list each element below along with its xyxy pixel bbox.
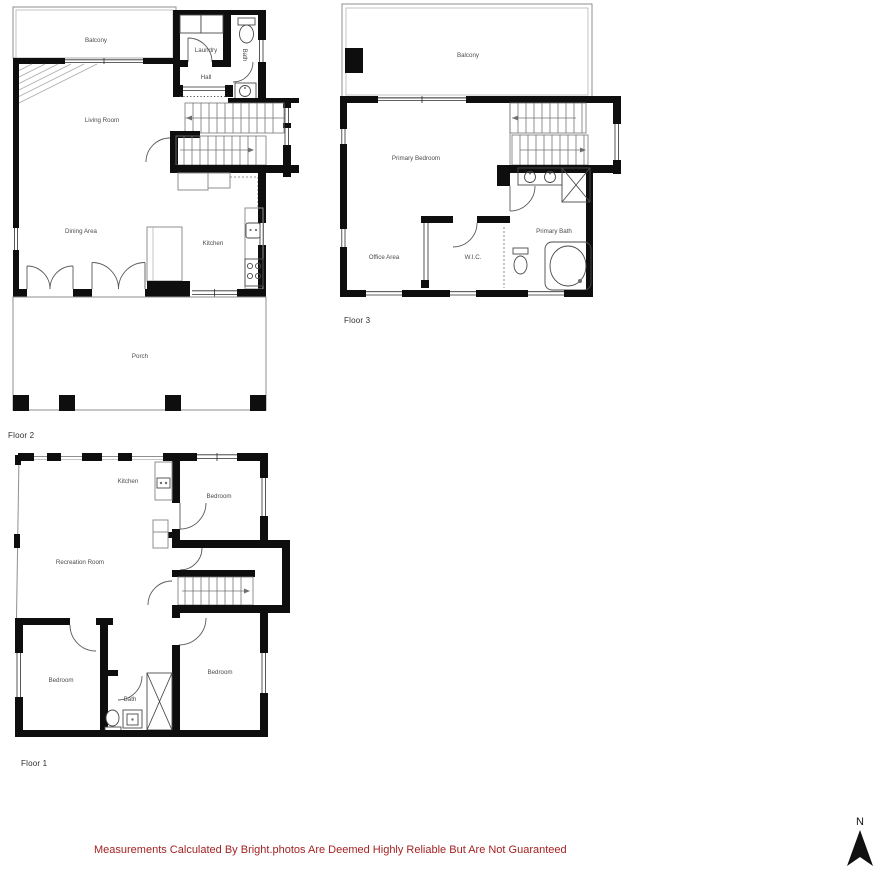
shower-icon	[562, 168, 590, 202]
floor3-caption: Floor 3	[344, 316, 370, 325]
floor2-plan: Balcony Laundry Hall Bath Living Room Di…	[8, 5, 300, 417]
floor1-plan: Kitchen Bedroom Recreation Room Bedroom …	[8, 448, 300, 748]
stair-door-arc	[146, 138, 170, 162]
room-label-kitchen: Kitchen	[118, 478, 139, 485]
window	[613, 124, 621, 160]
bedroom-left-door-arc	[70, 625, 96, 651]
hall-door-arc	[180, 548, 202, 570]
bathtub-icon	[545, 242, 591, 290]
floor3-wic	[421, 216, 510, 288]
floor2-stairs	[146, 98, 299, 177]
floor-plan-page: { "colors": { "wall": "#0e0e0e", "discla…	[0, 0, 888, 872]
floor2-laundry-bath-block	[173, 10, 266, 100]
floor1-bedroom-right	[260, 612, 268, 737]
toilet-icon	[513, 248, 528, 274]
room-label-wic: W.I.C.	[465, 254, 482, 261]
floor2-kitchen-fixtures	[147, 208, 263, 289]
room-label-living-room: Living Room	[85, 117, 119, 124]
floor1-center-wall	[168, 453, 206, 733]
bath-door-arc	[510, 186, 535, 211]
closet	[178, 173, 208, 190]
room-label-porch: Porch	[132, 353, 149, 360]
window	[342, 129, 345, 144]
closet	[153, 532, 168, 548]
dryer-icon	[201, 15, 223, 33]
slider-door	[147, 281, 190, 297]
room-label-hall: Hall	[201, 74, 212, 81]
bedroom-right-door-arc	[179, 618, 206, 645]
closet	[208, 173, 230, 188]
window	[192, 289, 237, 297]
window	[450, 292, 476, 295]
window	[342, 229, 345, 247]
floor3-plan: Balcony Primary Bedroom Office Area W.I.…	[336, 2, 626, 300]
ceiling-hatch	[19, 64, 97, 103]
window	[262, 653, 266, 693]
disclaimer-text: Measurements Calculated By Bright.photos…	[94, 844, 567, 856]
toilet-icon	[238, 18, 255, 43]
floor1-stairs	[148, 540, 290, 613]
floor2-bottom-wall	[13, 263, 266, 298]
bath-door-arc	[233, 62, 253, 82]
window	[15, 228, 18, 250]
porch-post	[59, 395, 75, 411]
room-label-laundry: Laundry	[195, 47, 218, 54]
bedroom-door-arc	[180, 503, 206, 529]
room-label-bedroom-left: Bedroom	[48, 677, 73, 684]
floor3-stairs	[497, 96, 621, 186]
floor1-bedroom-top	[163, 453, 290, 548]
soffit-dashed-line	[230, 177, 258, 208]
floor3-bottom-wall	[340, 290, 593, 297]
floor2-caption: Floor 2	[8, 431, 34, 440]
room-label-dining-area: Dining Area	[65, 228, 98, 235]
wic-door-arc	[453, 223, 477, 247]
porch-post	[250, 395, 266, 411]
north-arrow-icon	[847, 830, 873, 866]
toilet-icon	[105, 710, 121, 731]
north-compass: N	[840, 806, 882, 872]
kitchen-sink-icon	[246, 223, 260, 238]
room-label-kitchen: Kitchen	[203, 240, 224, 247]
floor2-balcony	[13, 7, 176, 58]
sink-icon	[235, 83, 256, 99]
room-label-balcony: Balcony	[457, 52, 480, 59]
window	[366, 292, 402, 295]
window	[197, 453, 237, 461]
french-doors	[27, 263, 145, 290]
window	[65, 58, 143, 64]
window	[17, 653, 21, 697]
window	[260, 478, 268, 516]
shower-icon	[147, 673, 172, 730]
room-label-primary-bath: Primary Bath	[536, 228, 572, 235]
room-label-balcony: Balcony	[85, 37, 108, 44]
porch-post	[13, 395, 29, 411]
stair-door-arc	[148, 581, 172, 605]
room-label-office-area: Office Area	[369, 254, 400, 261]
north-label: N	[856, 816, 864, 828]
window	[528, 292, 564, 295]
room-label-bedroom-right: Bedroom	[207, 669, 232, 676]
sink-icon	[123, 710, 142, 728]
kitchen-island	[147, 227, 182, 281]
chimney	[345, 48, 363, 73]
room-label-bath: Bath	[124, 696, 137, 703]
floor3-balcony	[342, 4, 592, 98]
room-label-primary-bedroom: Primary Bedroom	[392, 155, 440, 162]
porch-post	[165, 395, 181, 411]
room-label-recreation-room: Recreation Room	[56, 559, 104, 566]
floor1-bottom-wall	[15, 730, 268, 737]
window	[260, 40, 264, 62]
floor1-top-edge	[14, 453, 172, 618]
room-label-bath: Bath	[241, 49, 248, 62]
floor1-caption: Floor 1	[21, 759, 47, 768]
cabinet	[153, 520, 168, 532]
room-label-bedroom-top: Bedroom	[206, 493, 231, 500]
washer-icon	[180, 15, 201, 33]
window	[378, 96, 466, 103]
kitchen-sink-icon	[157, 478, 170, 488]
